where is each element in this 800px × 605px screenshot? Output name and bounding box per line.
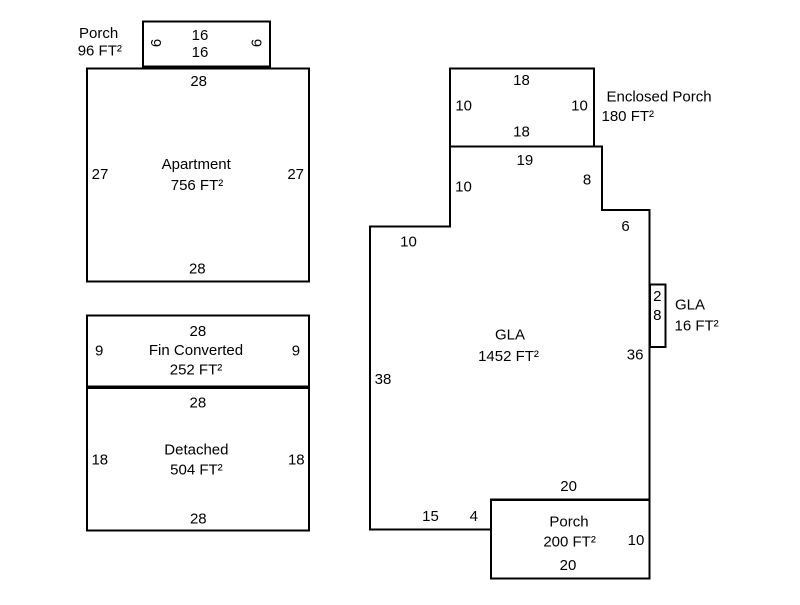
svg-text:6: 6 — [249, 39, 266, 47]
svg-text:252 FT²: 252 FT² — [170, 362, 223, 379]
svg-text:504 FT²: 504 FT² — [170, 462, 223, 479]
svg-text:18: 18 — [513, 72, 530, 89]
svg-text:Apartment: Apartment — [162, 156, 232, 173]
svg-text:180 FT²: 180 FT² — [602, 108, 655, 125]
svg-text:GLA: GLA — [675, 297, 705, 314]
svg-text:6: 6 — [148, 39, 165, 47]
svg-text:10: 10 — [400, 233, 417, 250]
svg-text:Fin Converted: Fin Converted — [149, 342, 243, 359]
svg-text:15: 15 — [422, 508, 439, 525]
svg-text:8: 8 — [653, 307, 661, 324]
svg-text:Porch: Porch — [549, 514, 588, 531]
svg-text:28: 28 — [189, 261, 206, 278]
svg-text:28: 28 — [190, 511, 207, 528]
svg-text:10: 10 — [571, 98, 588, 115]
svg-text:Detached: Detached — [164, 442, 228, 459]
svg-text:10: 10 — [628, 532, 645, 549]
svg-text:Porch: Porch — [79, 25, 118, 42]
svg-text:96 FT²: 96 FT² — [78, 43, 122, 60]
svg-text:28: 28 — [190, 73, 207, 90]
svg-text:2: 2 — [653, 288, 661, 305]
svg-text:16: 16 — [192, 27, 209, 44]
svg-text:8: 8 — [583, 171, 591, 188]
svg-text:18: 18 — [513, 124, 530, 141]
svg-text:20: 20 — [560, 557, 577, 574]
svg-text:9: 9 — [292, 343, 300, 360]
svg-text:18: 18 — [288, 452, 305, 469]
svg-text:28: 28 — [190, 323, 207, 340]
svg-text:27: 27 — [92, 166, 109, 183]
svg-text:36: 36 — [627, 347, 644, 364]
svg-text:18: 18 — [91, 452, 108, 469]
svg-text:1452 FT²: 1452 FT² — [478, 348, 539, 365]
svg-text:38: 38 — [375, 371, 392, 388]
svg-text:16 FT²: 16 FT² — [675, 317, 719, 334]
svg-text:Enclosed Porch: Enclosed Porch — [607, 89, 712, 106]
svg-text:10: 10 — [455, 98, 472, 115]
svg-text:20: 20 — [560, 478, 577, 495]
svg-text:200 FT²: 200 FT² — [543, 534, 596, 551]
svg-text:756 FT²: 756 FT² — [171, 177, 224, 194]
svg-text:10: 10 — [455, 179, 472, 196]
svg-text:19: 19 — [517, 152, 534, 169]
svg-text:28: 28 — [190, 395, 207, 412]
svg-text:16: 16 — [192, 44, 209, 61]
svg-text:9: 9 — [95, 343, 103, 360]
svg-text:6: 6 — [621, 218, 629, 235]
svg-text:4: 4 — [470, 508, 478, 525]
svg-text:27: 27 — [287, 166, 304, 183]
svg-text:GLA: GLA — [495, 327, 525, 344]
